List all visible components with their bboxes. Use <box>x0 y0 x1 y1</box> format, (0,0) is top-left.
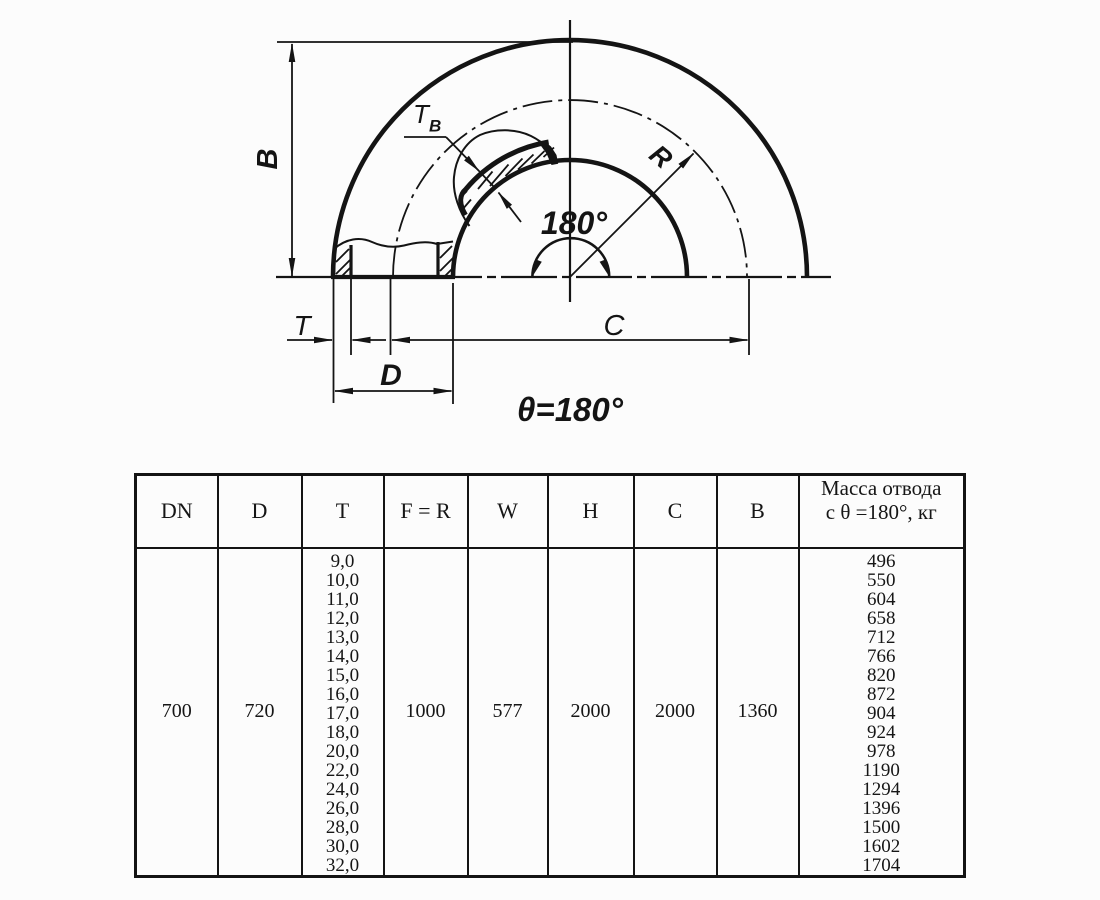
svg-text:C: C <box>604 310 626 342</box>
svg-text:180°: 180° <box>541 205 607 241</box>
svg-text:B: B <box>252 149 284 170</box>
svg-text:В: В <box>429 117 441 136</box>
svg-text:θ=180°: θ=180° <box>517 391 624 428</box>
svg-text:T: T <box>293 310 312 341</box>
svg-text:D: D <box>380 359 402 392</box>
svg-text:R: R <box>644 139 679 175</box>
